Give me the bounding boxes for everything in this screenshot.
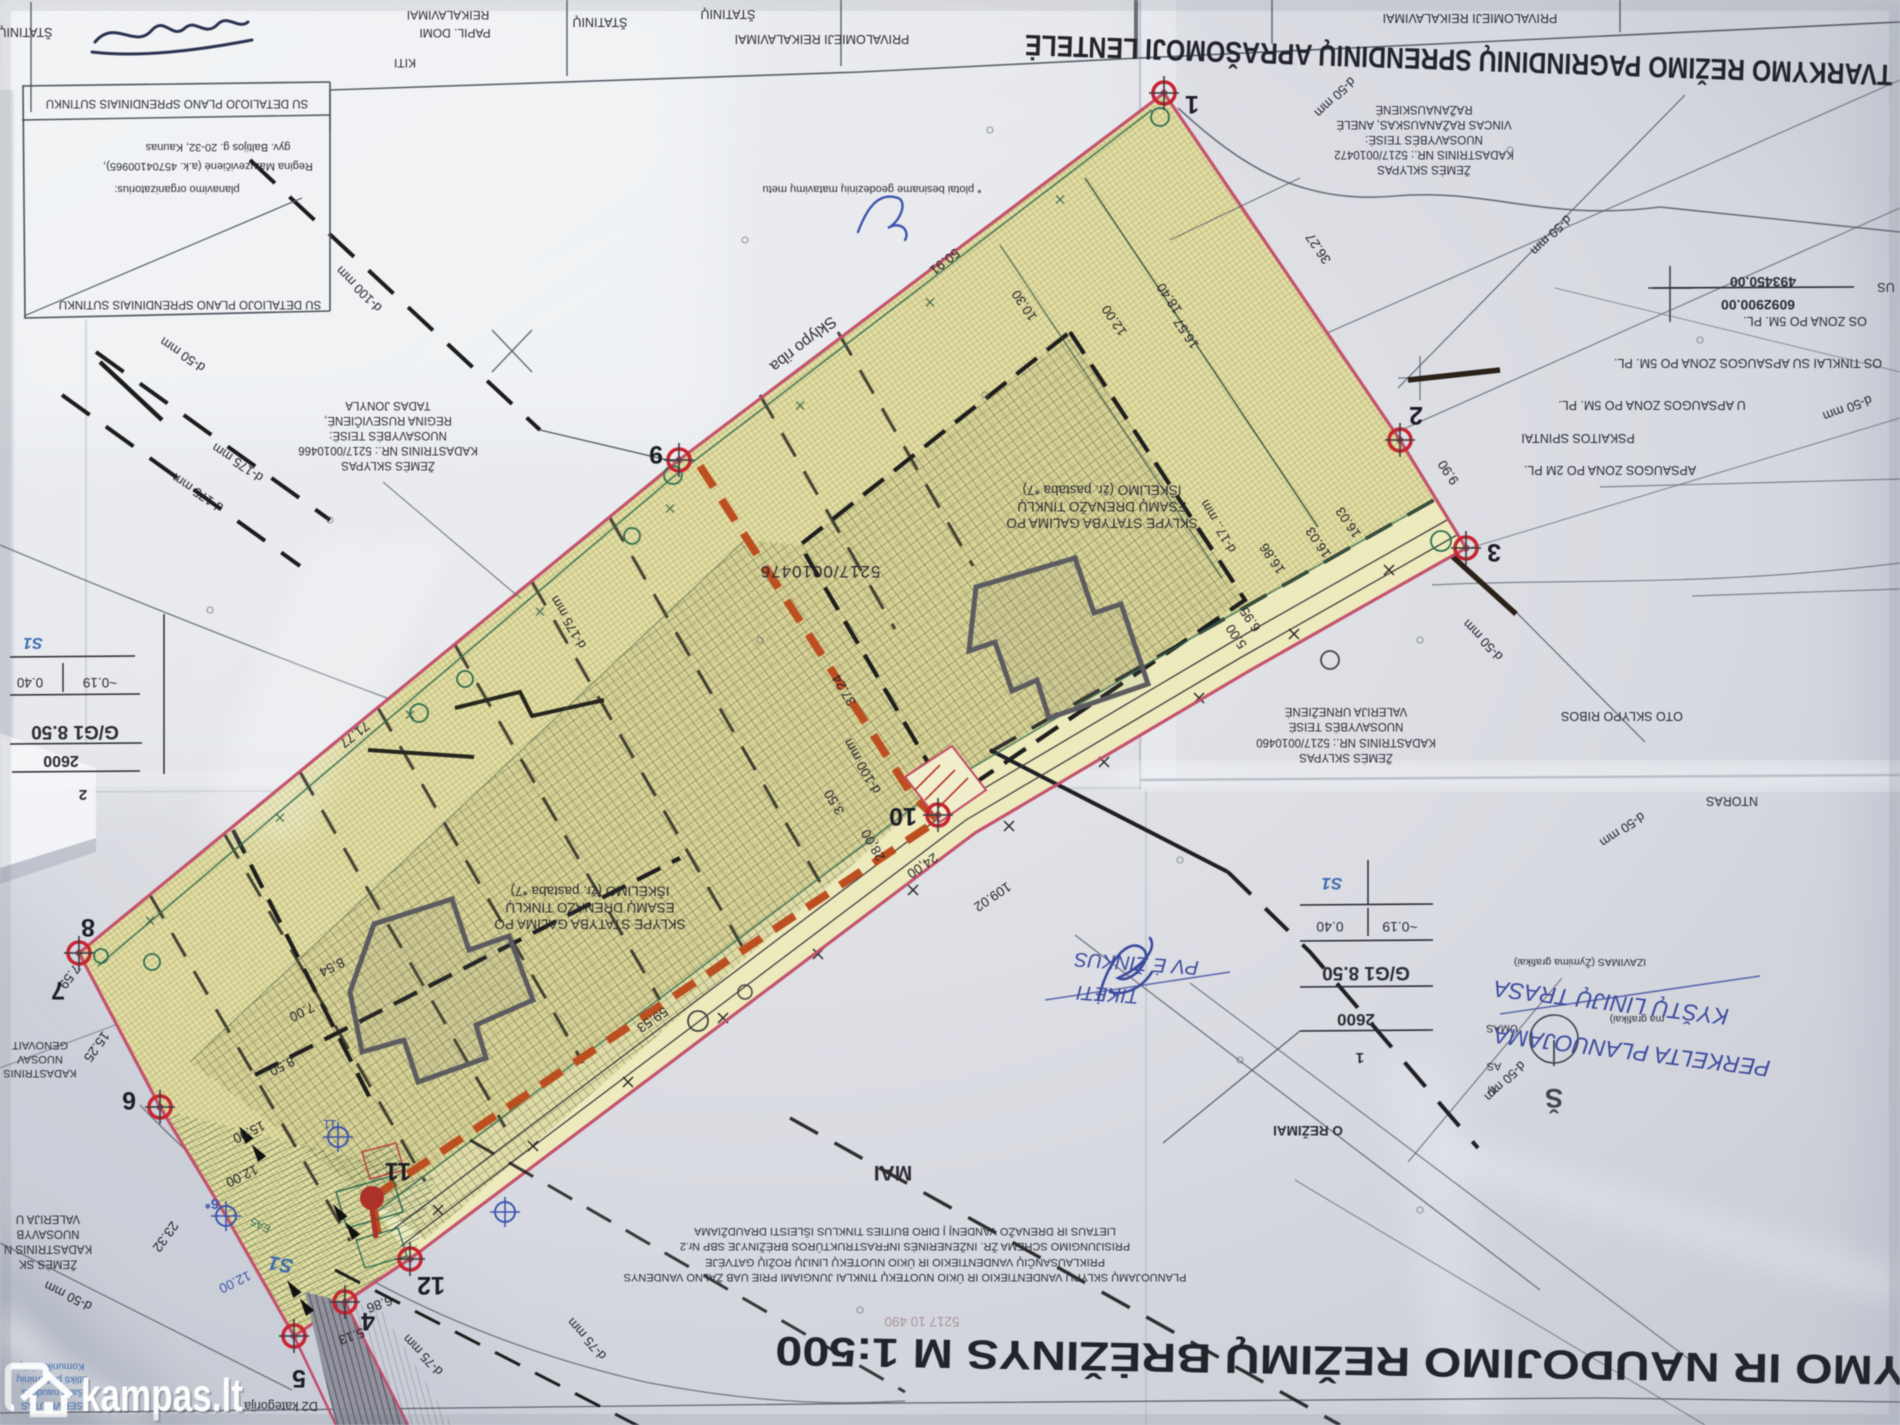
svg-text:11: 11 [385,1157,412,1185]
svg-text:G/G1 8.50: G/G1 8.50 [31,721,119,742]
svg-text:ŠTATINIŲ: ŠTATINIŲ [572,15,627,30]
svg-text:2600: 2600 [1337,1010,1375,1029]
svg-text:2600: 2600 [43,752,79,769]
svg-text:~0.19: ~0.19 [83,675,117,690]
svg-text:5217 10 490: 5217 10 490 [884,1314,959,1329]
svg-text:PSKAITOS SPINTAI: PSKAITOS SPINTAI [1521,431,1634,445]
svg-text:Regina Matuzevičienė (a.k. 457: Regina Matuzevičienė (a.k. 45704100965), [103,160,313,172]
svg-text:6092900.00: 6092900.00 [1721,297,1795,313]
svg-text:planavimo organizatorius:: planavimo organizatorius: [114,183,239,195]
svg-text:5217/0010476: 5217/0010476 [760,562,881,581]
svg-text:3: 3 [1487,538,1501,566]
svg-text:kampas.lt: kampas.lt [81,1369,243,1421]
svg-text:AS: AS [1487,1060,1502,1072]
svg-text:U APSAUGOS ZONA PO 5M. PL.: U APSAUGOS ZONA PO 5M. PL. [1558,398,1746,412]
svg-text:0.40: 0.40 [1316,919,1343,935]
svg-text:OS TINKLAI SU APSAUGOS ZONA PO: OS TINKLAI SU APSAUGOS ZONA PO 5M. PL. [1614,356,1882,370]
svg-text:10: 10 [889,802,917,830]
svg-text:NTORAS: NTORAS [1706,794,1758,808]
svg-text:SKLYPE STATYBA GALIMA POESAMŲ: SKLYPE STATYBA GALIMA POESAMŲ DRENAŽO TI… [494,884,685,932]
svg-text:11: 11 [323,1117,337,1132]
svg-text:1: 1 [1356,1049,1364,1066]
svg-text:S1: S1 [23,634,43,651]
svg-text:S1: S1 [1322,874,1343,893]
svg-text:Š: Š [1545,1083,1563,1114]
svg-text:* plotai besiname geodezinių m: * plotai besiname geodezinių matavimų me… [763,183,982,195]
svg-text:1: 1 [1185,90,1199,118]
svg-text:SU DETALIOJO PLANO SPRENDINIAI: SU DETALIOJO PLANO SPRENDINIAIS SUTINKU [59,298,321,310]
svg-text:6: 6 [122,1086,136,1114]
svg-text:PRIVALOMIEJI REIKALAVIMAI: PRIVALOMIEJI REIKALAVIMAI [1383,11,1558,25]
svg-text:MAI: MAI [874,1161,913,1184]
svg-text:PAPIL. DOMI: PAPIL. DOMI [419,26,490,40]
svg-text:9: 9 [649,440,663,468]
svg-text:5: 5 [292,1364,306,1392]
svg-text:OTO SKLYPO RIBOS: OTO SKLYPO RIBOS [1561,709,1683,723]
svg-text:SU DETALIOJO PLANO SPRENDINIAI: SU DETALIOJO PLANO SPRENDINIAIS SUTINKU [46,97,308,109]
svg-text:~0.19: ~0.19 [1382,919,1418,935]
svg-text:2: 2 [79,786,87,803]
svg-text:KITI: KITI [394,56,416,70]
svg-text:IZAVIMAS (Žymima grafikai): IZAVIMAS (Žymima grafikai) [1514,956,1646,969]
svg-text:OS ZONA PO 5M. PL.: OS ZONA PO 5M. PL. [1743,314,1867,328]
svg-text:D2 kategorija: D2 kategorija [244,1399,318,1413]
svg-text:SKLYPE STATYBA GALIMA POESAMŲ: SKLYPE STATYBA GALIMA POESAMŲ DRENAŽO TI… [1006,483,1197,531]
svg-text:6*: 6* [205,1195,219,1212]
svg-text:G/G1 8.50: G/G1 8.50 [1322,962,1410,983]
svg-text:8: 8 [81,913,95,941]
svg-text:S1: S1 [267,1251,295,1277]
svg-text:12: 12 [417,1271,445,1299]
svg-text:0.40: 0.40 [17,675,43,690]
svg-text:APSAUGOS ZONA PO 2M PL.: APSAUGOS ZONA PO 2M PL. [1524,463,1696,477]
svg-text:M: M [1487,1083,1496,1095]
svg-text:PRIVALOMIEJI REIKALAVIMAI: PRIVALOMIEJI REIKALAVIMAI [735,32,910,46]
svg-text:O REŽIMAI: O REŽIMAI [1273,1123,1343,1138]
svg-text:gyv. Baltijos g. 20-32, Kaunas: gyv. Baltijos g. 20-32, Kaunas [145,141,290,153]
svg-text:2: 2 [1409,401,1423,429]
